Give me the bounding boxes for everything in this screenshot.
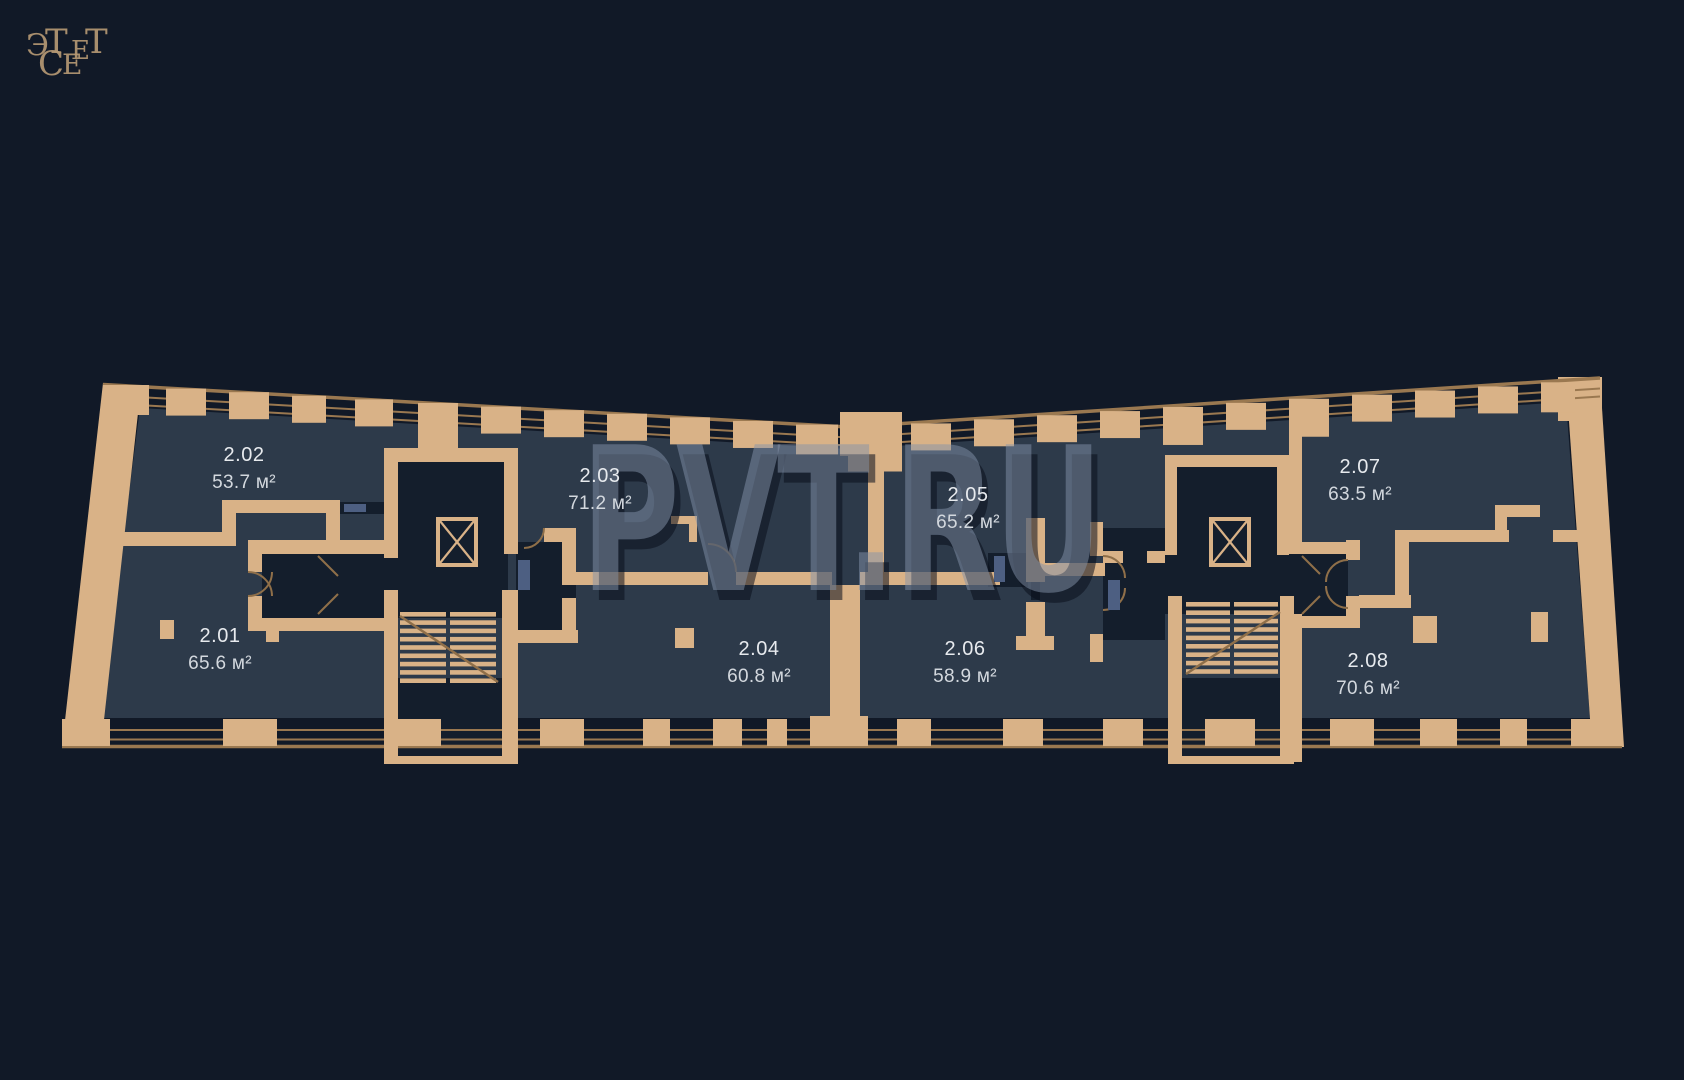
- apartment-number: 2.04: [679, 638, 839, 661]
- apartment-number: 2.01: [140, 625, 300, 648]
- apartment-area: 65.2 м²: [888, 512, 1048, 534]
- apartment-2.06[interactable]: 2.0658.9 м²: [885, 638, 1045, 688]
- apartment-2.02[interactable]: 2.0253.7 м²: [164, 444, 324, 494]
- floor-plan-page: PVT.RU 2.0165.6 м²2.0253.7 м²2.0371.2 м²…: [0, 0, 1684, 1080]
- apartment-area: 70.6 м²: [1288, 678, 1448, 700]
- apartment-2.03[interactable]: 2.0371.2 м²: [520, 465, 680, 515]
- apartment-number: 2.03: [520, 465, 680, 488]
- apartment-area: 53.7 м²: [164, 472, 324, 494]
- apartment-area: 71.2 м²: [520, 493, 680, 515]
- apartment-2.04[interactable]: 2.0460.8 м²: [679, 638, 839, 688]
- apartment-area: 60.8 м²: [679, 666, 839, 688]
- apartment-2.05[interactable]: 2.0565.2 м²: [888, 484, 1048, 534]
- apartment-number: 2.07: [1280, 456, 1440, 479]
- elevator-right: [1211, 519, 1249, 565]
- apartment-area: 65.6 м²: [140, 653, 300, 675]
- elevator-left: [438, 519, 476, 565]
- apartment-area: 58.9 м²: [885, 666, 1045, 688]
- apartment-2.08[interactable]: 2.0870.6 м²: [1288, 650, 1448, 700]
- apartment-number: 2.05: [888, 484, 1048, 507]
- apartment-2.07[interactable]: 2.0763.5 м²: [1280, 456, 1440, 506]
- apartment-2.01[interactable]: 2.0165.6 м²: [140, 625, 300, 675]
- floor-plan-drawing: [0, 0, 1684, 1080]
- apartment-number: 2.08: [1288, 650, 1448, 673]
- apartment-area: 63.5 м²: [1280, 484, 1440, 506]
- apartment-number: 2.02: [164, 444, 324, 467]
- apartment-number: 2.06: [885, 638, 1045, 661]
